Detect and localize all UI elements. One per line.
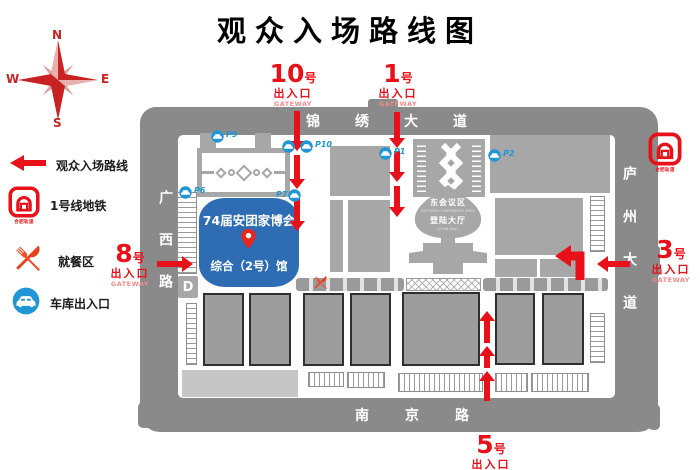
parking-strip — [347, 372, 385, 388]
gateway-number: 5 — [476, 430, 493, 459]
gateway-5-label: 5号 出入口 GATEWAY — [463, 432, 519, 470]
route-arrow-up — [479, 371, 495, 401]
gateway-unit: 号 — [674, 247, 686, 261]
compass-rose-icon: N W E S — [8, 34, 108, 126]
parking-label-p1: P1 — [394, 147, 405, 156]
parking-car-icon — [288, 187, 301, 200]
route-arrow-down — [389, 112, 405, 148]
route-arrow-down — [289, 155, 305, 189]
gateway-unit: 号 — [401, 71, 413, 85]
route-arrow-up — [479, 311, 495, 343]
parking-car-icon — [379, 145, 392, 158]
route-arrow-right — [157, 256, 193, 272]
exhibition-hall — [330, 200, 343, 272]
road-label-left: 广西路 — [155, 190, 175, 316]
location-pin-icon — [240, 228, 257, 254]
main-exhibition-hall: 74届安团家博会 综合（2号）馆 — [199, 198, 299, 287]
compass-south-label: S — [53, 116, 62, 130]
exhibition-hall — [303, 293, 344, 366]
exhibition-hall — [490, 135, 610, 193]
parking-label-p9: P9 — [226, 130, 237, 139]
gateway-entrance-label: 出入口 — [265, 88, 321, 99]
parking-strip — [398, 373, 483, 392]
gateway-1-label: 1号 出入口 GATEWAY — [370, 61, 426, 108]
gate-tab-bottom-left — [138, 402, 152, 428]
exhibition-hall — [542, 293, 584, 365]
gateway-entrance-label: 出入口 — [370, 88, 426, 99]
legend-label-garage: 车库出入口 — [50, 295, 110, 312]
metro-logo-text: 合肥轨道 — [14, 219, 34, 225]
road-label-right: 庐州大道 — [619, 166, 639, 338]
gateway-entrance-label: 出入口 — [463, 459, 519, 470]
exhibition-hall — [402, 292, 480, 366]
garage-icon — [12, 287, 40, 319]
legend-item-route: 观众入场路线 — [10, 154, 128, 176]
gateway-caption: GATEWAY — [102, 281, 158, 288]
gateway-8-label: 8号 出入口 GATEWAY — [102, 241, 158, 288]
gate-tab-bottom-right — [648, 404, 660, 430]
legend-item-dining: 就餐区 — [10, 240, 94, 282]
main-hall-title: 74届安团家博会 — [199, 210, 299, 229]
corridor-bridge — [406, 278, 481, 291]
landing-hall-label: 登陆大厅 — [403, 216, 493, 226]
parking-car-icon — [488, 147, 501, 160]
route-arrow-turn — [553, 243, 587, 281]
parking-strip — [495, 373, 528, 392]
gateway-unit: 号 — [304, 71, 316, 85]
exhibition-hall — [350, 293, 391, 366]
parking-strip — [590, 196, 605, 252]
gateway-3-label: 3号 出入口 GATEWAY — [643, 237, 699, 284]
metro-logo-icon: 合肥轨道 — [648, 132, 682, 173]
compass-west-label: W — [6, 72, 19, 86]
gateway-unit: 号 — [494, 442, 506, 456]
gateway-number: 8 — [115, 239, 132, 268]
legend-item-metro: 合肥轨道 1号线地铁 — [8, 186, 106, 225]
route-arrow-up — [479, 346, 495, 368]
gateway-10-label: 10号 出入口 GATEWAY — [265, 61, 321, 108]
road-label-bottom: 南京路 — [355, 405, 505, 425]
main-hall-subtitle: 综合（2号）馆 — [199, 258, 299, 274]
gateway-entrance-label: 出入口 — [643, 264, 699, 275]
route-arrow-down — [389, 186, 405, 217]
parking-car-icon — [211, 128, 224, 141]
parking-car-icon — [300, 138, 313, 151]
exhibition-hall — [495, 293, 535, 365]
legend-label-dining: 就餐区 — [58, 253, 94, 270]
gateway-caption: GATEWAY — [370, 101, 426, 108]
plaza-connector — [255, 133, 271, 149]
parking-car-icon — [282, 138, 295, 151]
parking-label-p10: P10 — [315, 140, 332, 149]
compass-east-label: E — [101, 72, 109, 86]
gateway-number: 10 — [270, 59, 305, 88]
conference-area-caption: EASTERN CONFERENCE AREA — [408, 208, 489, 213]
compass-north-label: N — [52, 28, 62, 42]
legend-label-route: 观众入场路线 — [56, 157, 128, 174]
garage-door-marker: D — [178, 276, 198, 298]
exhibition-hall — [249, 293, 291, 366]
route-map-page: 观众入场路线图 N W E S 观众入场路线 合肥轨道 1号线地铁 — [0, 0, 700, 470]
route-arrow-icon — [10, 154, 46, 176]
metro-logo-icon: 合肥轨道 — [8, 186, 40, 225]
parking-car-icon — [179, 184, 192, 197]
parking-strip — [531, 373, 589, 392]
gateway-caption: GATEWAY — [643, 277, 699, 284]
exhibition-hall — [348, 200, 390, 272]
metro-logo-text: 合肥轨道 — [655, 167, 675, 173]
parking-label-p6: P6 — [194, 186, 205, 195]
conference-area-label: 东会议区 — [403, 198, 493, 208]
service-apron — [182, 370, 298, 397]
exhibition-hall — [495, 259, 537, 277]
landing-hall-labels: 东会议区 EASTERN CONFERENCE AREA 登陆大厅 LOGIN … — [403, 198, 493, 231]
parking-strip — [186, 303, 197, 365]
exhibition-hall — [203, 293, 244, 366]
parking-strip — [308, 372, 344, 387]
route-arrow-left — [597, 256, 630, 272]
legend-label-metro: 1号线地铁 — [50, 197, 106, 214]
landing-hall-caption: LOGIN HALL — [408, 226, 489, 231]
gateway-number: 1 — [383, 59, 400, 88]
gateway-number: 3 — [656, 235, 673, 264]
parking-strip — [590, 313, 605, 363]
gateway-caption: GATEWAY — [265, 101, 321, 108]
dining-icon — [10, 240, 48, 282]
legend-item-garage: 车库出入口 — [12, 287, 110, 319]
gateway-unit: 号 — [133, 251, 145, 265]
parking-label-p2: P2 — [503, 149, 514, 158]
gateway-entrance-label: 出入口 — [102, 268, 158, 279]
corridor-walkway — [483, 278, 608, 291]
parking-label-p7: P7 — [276, 190, 287, 199]
